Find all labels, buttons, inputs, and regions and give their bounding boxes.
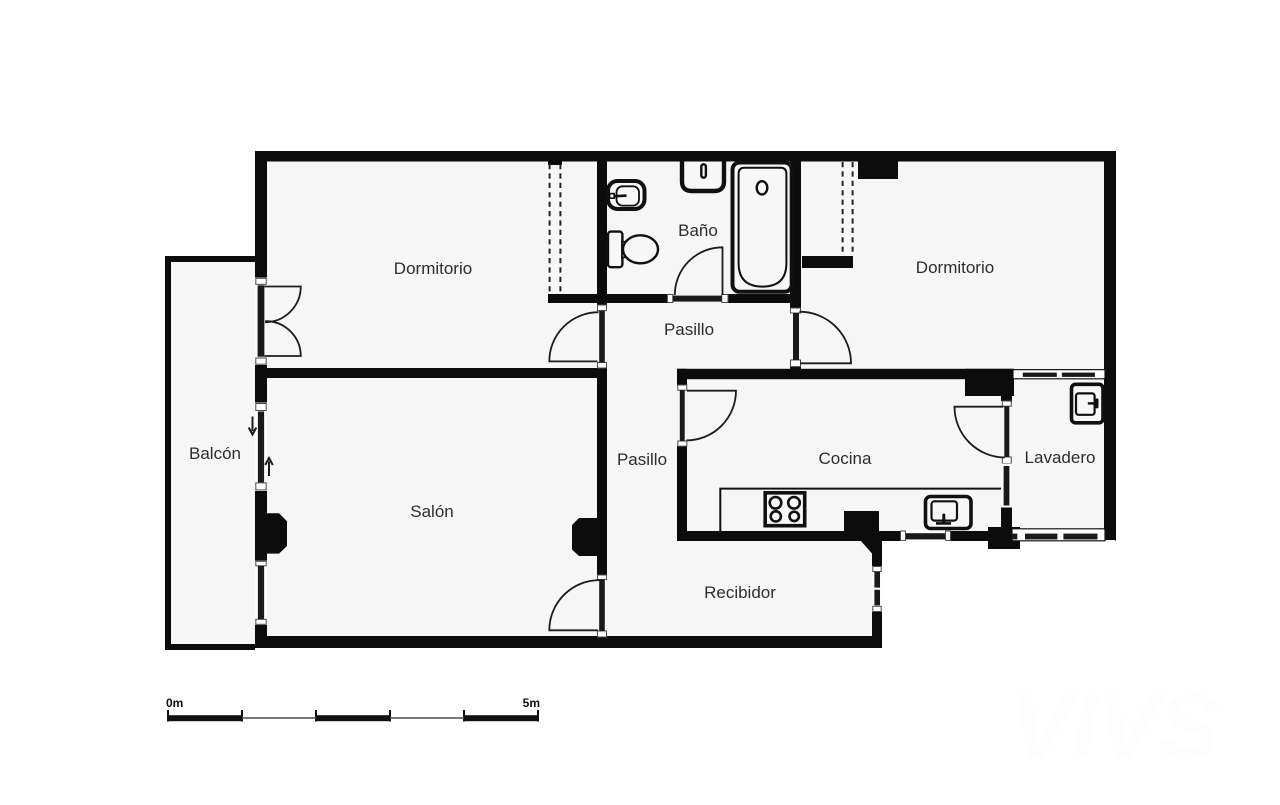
svg-text:Recibidor: Recibidor <box>704 583 776 602</box>
svg-text:5m: 5m <box>523 696 540 710</box>
svg-text:Pasillo: Pasillo <box>664 320 714 339</box>
svg-text:Dormitorio: Dormitorio <box>394 259 472 278</box>
svg-text:0m: 0m <box>166 696 183 710</box>
svg-text:Salón: Salón <box>410 502 453 521</box>
svg-text:Dormitorio: Dormitorio <box>916 258 994 277</box>
svg-text:Baño: Baño <box>678 221 718 240</box>
svg-text:Balcón: Balcón <box>189 444 241 463</box>
svg-text:Cocina: Cocina <box>819 449 872 468</box>
svg-text:VIVS: VIVS <box>1010 676 1220 778</box>
svg-text:Lavadero: Lavadero <box>1025 448 1096 467</box>
svg-text:Pasillo: Pasillo <box>617 450 667 469</box>
